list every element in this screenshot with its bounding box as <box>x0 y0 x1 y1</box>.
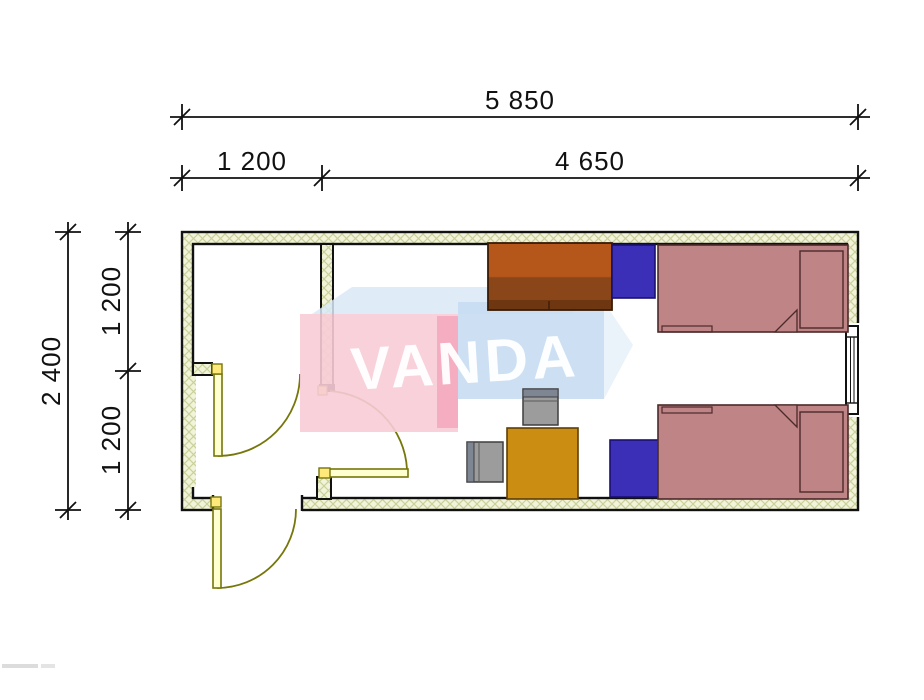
entrance-door-swing <box>217 509 296 588</box>
dim-label-room-width: 4 650 <box>555 146 625 176</box>
bed-bottom-pillow <box>800 412 843 492</box>
entrance-door-hinge <box>211 497 221 507</box>
dim-label-total-width: 5 850 <box>485 85 555 115</box>
left-door-leaf <box>214 374 222 456</box>
interior-door-leaf <box>322 469 408 477</box>
dim-label-entry-width: 1 200 <box>217 146 287 176</box>
bed-top <box>658 245 848 332</box>
desk <box>507 428 578 499</box>
dim-label-total-depth: 2 400 <box>36 336 66 406</box>
window <box>846 326 858 414</box>
desk-chair <box>523 389 558 425</box>
left-door-hinge <box>212 364 222 374</box>
partition-stub <box>317 477 331 499</box>
side-chair <box>467 442 503 482</box>
left-door-jamb <box>193 363 212 375</box>
wardrobe <box>488 243 612 310</box>
nightstand-top <box>612 245 655 298</box>
dim-label-depth-upper: 1 200 <box>96 266 126 336</box>
floor-plan-canvas: 5 850 1 200 4 650 2 400 1 200 1 200 <box>0 0 924 700</box>
interior-door-hinge <box>319 468 330 478</box>
bed-bottom <box>658 405 848 499</box>
entrance-door-leaf <box>213 509 221 588</box>
floor-plan-sheet: 5 850 1 200 4 650 2 400 1 200 1 200 <box>0 0 924 700</box>
dim-label-depth-lower: 1 200 <box>96 405 126 475</box>
fine-print-smudge <box>2 664 55 668</box>
nightstand-bottom <box>610 440 660 497</box>
bed-top-pillow <box>800 251 843 328</box>
entrance-opening <box>213 493 302 513</box>
